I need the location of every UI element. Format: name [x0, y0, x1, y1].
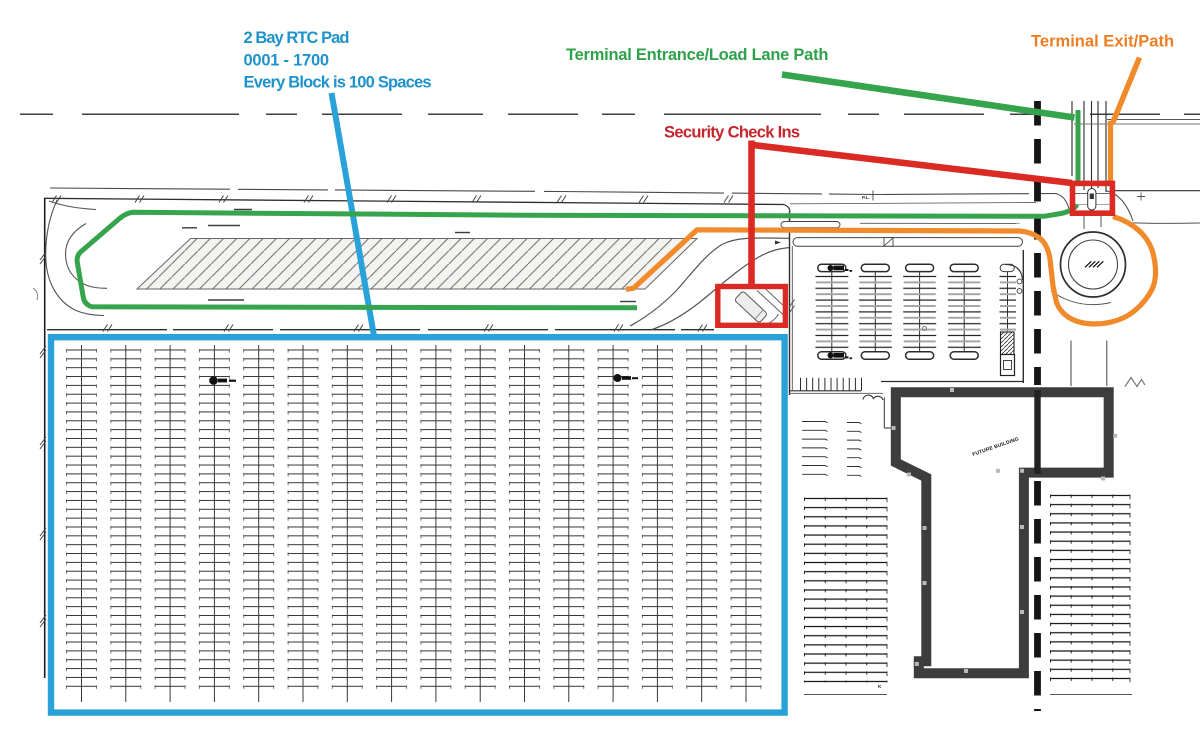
svg-text:2 Bay RTC Pad: 2 Bay RTC Pad	[244, 29, 349, 47]
svg-text:P.L.: P.L.	[862, 195, 870, 200]
svg-text:Terminal Entrance/Load Lane Pa: Terminal Entrance/Load Lane Path	[566, 46, 828, 64]
svg-text:Terminal Exit/Path: Terminal Exit/Path	[1031, 33, 1174, 51]
svg-text:Security Check Ins: Security Check Ins	[664, 124, 800, 142]
svg-text:0001 - 1700: 0001 - 1700	[244, 51, 329, 69]
svg-text:Every Block is 100 Spaces: Every Block is 100 Spaces	[244, 74, 432, 92]
